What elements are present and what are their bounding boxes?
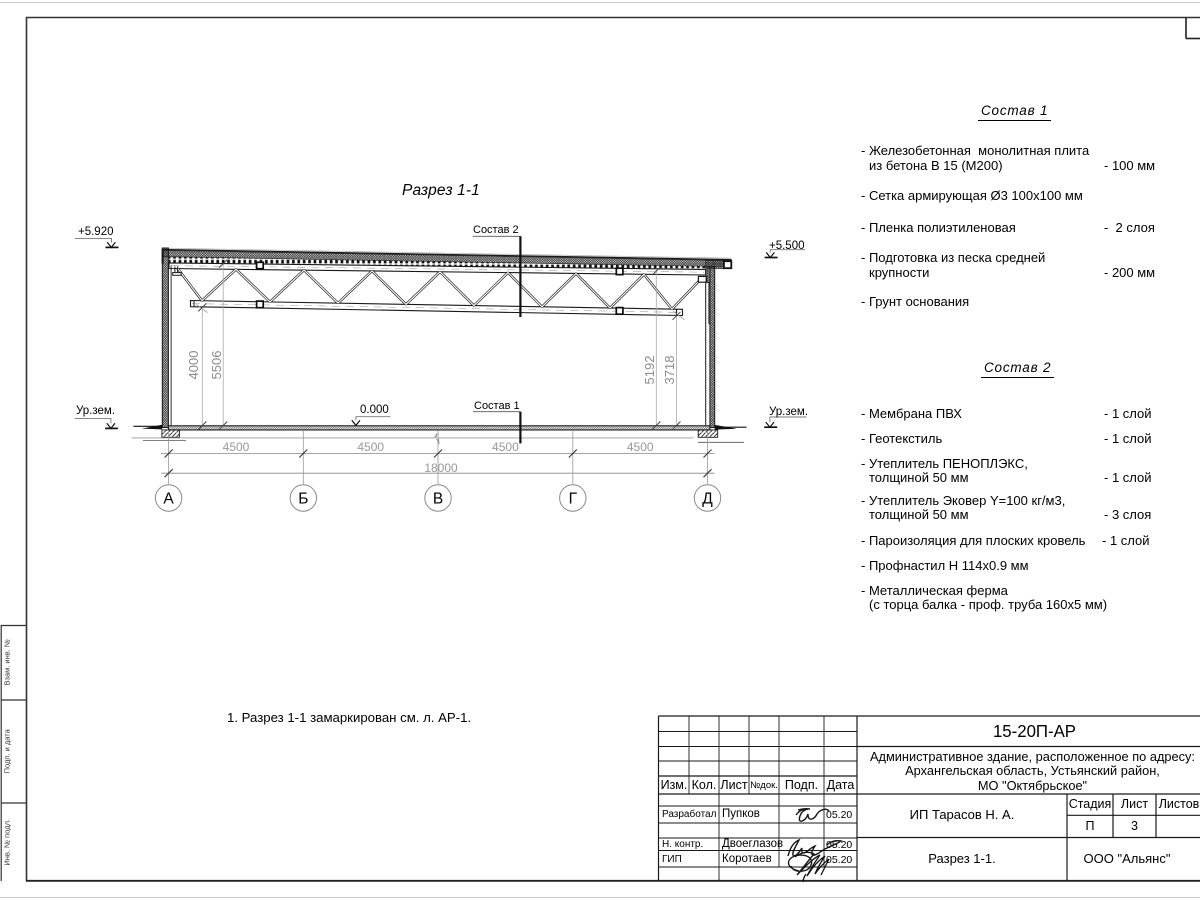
svg-text:4500: 4500: [492, 440, 519, 454]
svg-text:Г: Г: [569, 490, 578, 507]
svg-text:4500: 4500: [223, 440, 250, 454]
svg-text:4000: 4000: [186, 351, 201, 380]
svg-text:Д: Д: [702, 490, 713, 507]
svg-text:4500: 4500: [357, 440, 384, 454]
svg-text:Б: Б: [298, 490, 308, 507]
svg-text:5192: 5192: [642, 356, 657, 385]
svg-text:18000: 18000: [424, 461, 458, 475]
svg-text:А: А: [163, 490, 174, 507]
svg-text:4500: 4500: [627, 440, 654, 454]
svg-text:3718: 3718: [662, 356, 677, 385]
svg-text:5506: 5506: [209, 351, 224, 380]
svg-text:В: В: [433, 490, 443, 507]
